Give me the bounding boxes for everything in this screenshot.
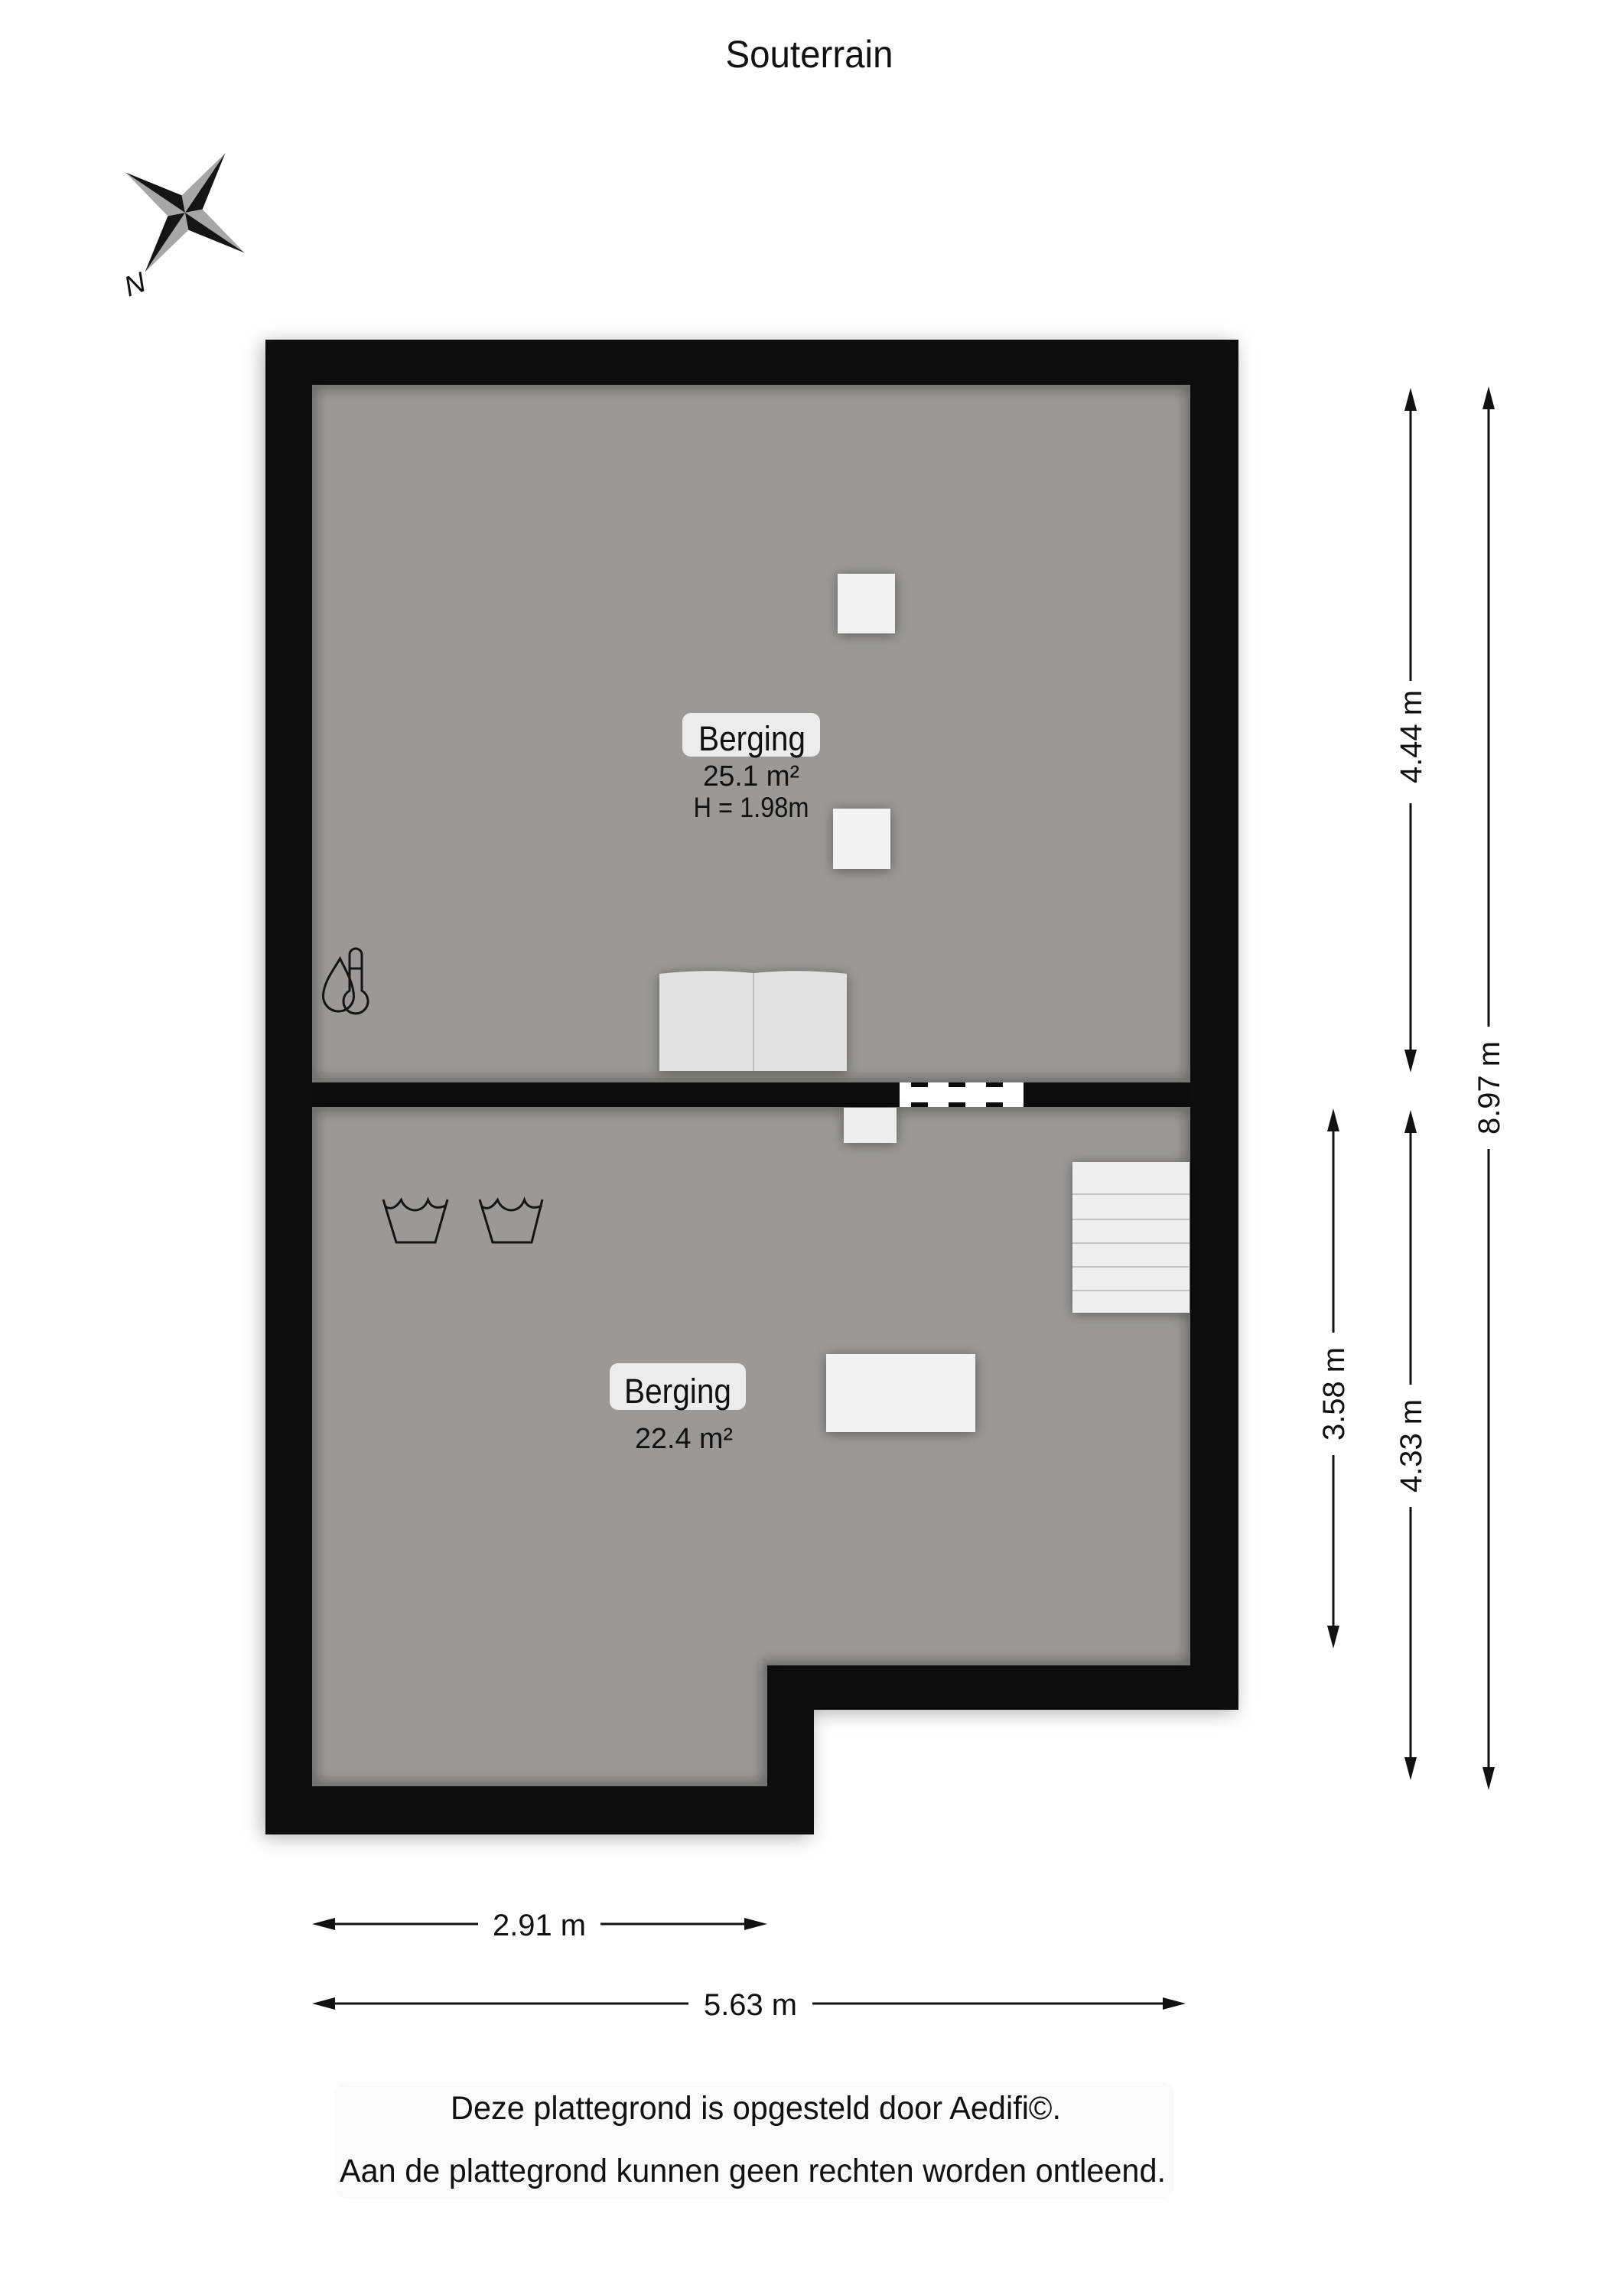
svg-text:Deze plattegrond is opgesteld: Deze plattegrond is opgesteld door Aedif… — [451, 2090, 1061, 2127]
svg-text:Aan de plattegrond kunnen geen: Aan de plattegrond kunnen geen rechten w… — [340, 2153, 1166, 2189]
svg-text:22.4 m²: 22.4 m² — [635, 1423, 733, 1455]
svg-text:4.44 m: 4.44 m — [1395, 690, 1428, 783]
svg-text:25.1 m²: 25.1 m² — [703, 760, 799, 793]
svg-text:2.91 m: 2.91 m — [493, 1909, 586, 1942]
svg-text:H = 1.98m: H = 1.98m — [694, 792, 809, 823]
svg-text:8.97 m: 8.97 m — [1473, 1041, 1506, 1134]
svg-text:Berging: Berging — [698, 719, 805, 758]
svg-text:4.33 m: 4.33 m — [1395, 1399, 1428, 1493]
svg-text:Berging: Berging — [624, 1372, 731, 1411]
svg-text:Souterrain: Souterrain — [726, 33, 893, 76]
svg-text:5.63 m: 5.63 m — [704, 1988, 797, 2022]
svg-text:3.58 m: 3.58 m — [1317, 1347, 1351, 1440]
